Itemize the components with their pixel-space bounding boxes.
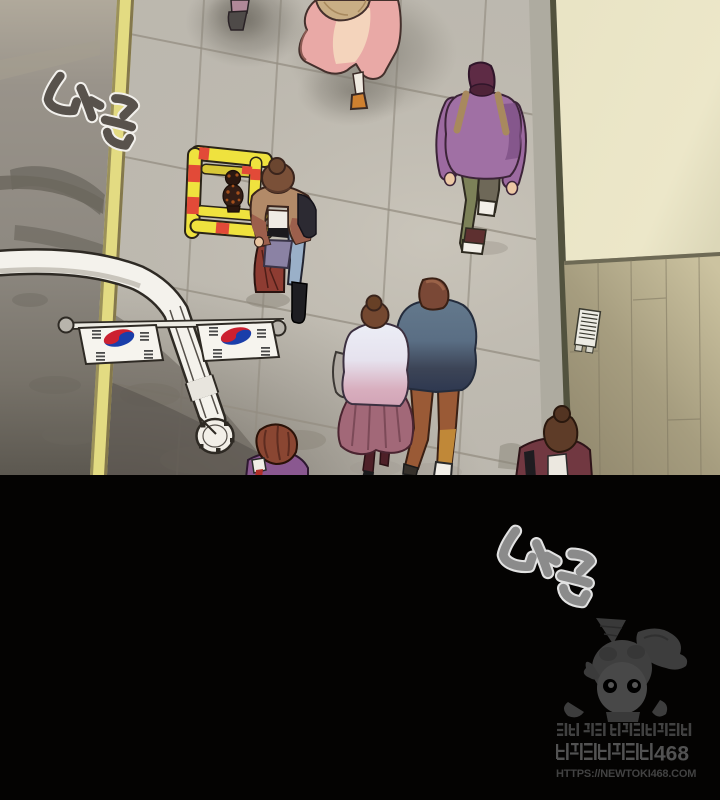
svg-text:468: 468 [654,743,689,766]
svg-text:HTTPS://NEWTOKI468.COM: HTTPS://NEWTOKI468.COM [556,768,696,780]
